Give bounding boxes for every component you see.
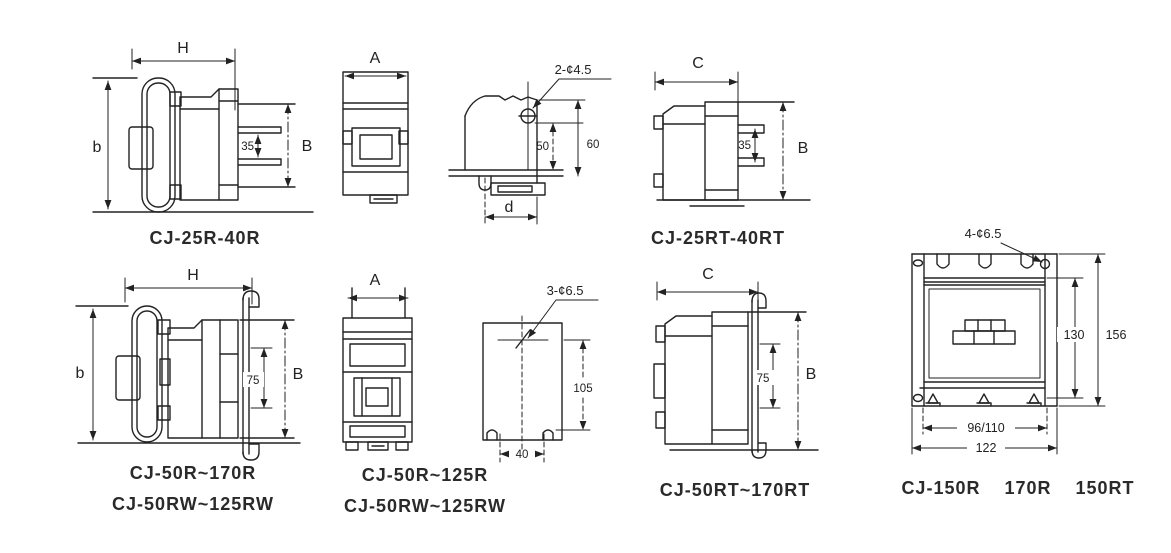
front-view-large-drawing: A xyxy=(332,262,427,457)
hole-callout-3x65: 3-¢6.5 xyxy=(547,283,584,298)
dim-label-96-110: 96/110 xyxy=(967,421,1004,435)
mount-plate-dimensions xyxy=(500,300,598,462)
cj150r-body-outline xyxy=(912,254,1057,406)
dim-label-B: B xyxy=(293,366,304,383)
dim-label-b: b xyxy=(93,139,102,156)
dim-label-122: 122 xyxy=(976,441,997,455)
dim-label-105: 105 xyxy=(573,383,592,395)
front-view-small-drawing: A xyxy=(330,45,430,215)
cj25rt-dimensions xyxy=(655,72,783,200)
cj25r-dimension-lines xyxy=(108,49,288,209)
dim-label-75: 75 xyxy=(247,375,260,387)
dim-label-156: 156 xyxy=(1106,328,1127,342)
cj25rt-side-view-drawing: C B 35 xyxy=(632,52,817,217)
front-large-outline xyxy=(343,288,412,450)
cj50rt-side-view-drawing: C B 75 xyxy=(640,262,830,464)
caption-cj50rt-170rt: CJ-50RT~170RT xyxy=(635,480,835,501)
dim-label-60: 60 xyxy=(587,139,600,151)
caption-cj50rw-125rw: CJ-50RW~125RW xyxy=(73,494,313,515)
mount-small-outline xyxy=(449,82,563,195)
cj150r-front-view-drawing: 4-¢6.5 130 156 96/110 122 xyxy=(895,222,1140,470)
hole-callout-2x45: 2-¢4.5 xyxy=(555,62,592,77)
mount-view-small-drawing: 2-¢4.5 50 60 d xyxy=(445,52,615,237)
cj50r-side-view-drawing: H b B 75 xyxy=(68,262,318,464)
dim-label-B: B xyxy=(798,140,809,157)
dim-label-B: B xyxy=(806,366,817,383)
dim-label-a: A xyxy=(370,272,381,289)
dim-label-35: 35 xyxy=(738,140,751,152)
dim-label-c: C xyxy=(702,266,714,283)
cj25rt-body-outline xyxy=(654,102,810,206)
caption-cj25r-40r: CJ-25R-40R xyxy=(85,228,325,249)
dim-label-B: B xyxy=(302,138,313,155)
dim-label-c: C xyxy=(692,55,704,72)
caption-cj50r-170r: CJ-50R~170R xyxy=(73,463,313,484)
cj50rt-dimensions xyxy=(657,282,798,450)
dim-label-40: 40 xyxy=(516,449,529,461)
caption-cj150r-170r-150rt: CJ-150R 170R 150RT xyxy=(893,478,1143,499)
hole-callout-4x65: 4-¢6.5 xyxy=(965,226,1002,241)
dim-label-b: b xyxy=(76,365,85,382)
dim-label-d: d xyxy=(505,199,514,216)
dim-label-a: A xyxy=(370,50,381,67)
cj50r-body-outline xyxy=(76,291,300,460)
cj25r-body-outline xyxy=(93,78,313,212)
cj25r-side-view-drawing: H b B 35 xyxy=(85,35,320,227)
contactor-dimension-diagram-sheet: H b B 35 CJ-25R-40R A xyxy=(0,0,1171,553)
dim-label-35: 35 xyxy=(241,141,254,153)
caption-cj25rt-40rt: CJ-25RT-40RT xyxy=(618,228,818,249)
mount-plate-drawing: 3-¢6.5 105 40 xyxy=(470,278,602,470)
dim-label-h: H xyxy=(187,267,199,284)
caption-cj50rw-125rw-2: CJ-50RW~125RW xyxy=(325,496,525,517)
cj50r-dimensions xyxy=(93,278,285,440)
front-small-outline xyxy=(343,72,408,203)
dim-label-75: 75 xyxy=(757,373,770,385)
dim-label-h: H xyxy=(177,40,189,57)
dim-label-50: 50 xyxy=(536,141,549,153)
cj50rt-body-outline xyxy=(654,293,818,458)
dim-label-130: 130 xyxy=(1064,328,1085,342)
